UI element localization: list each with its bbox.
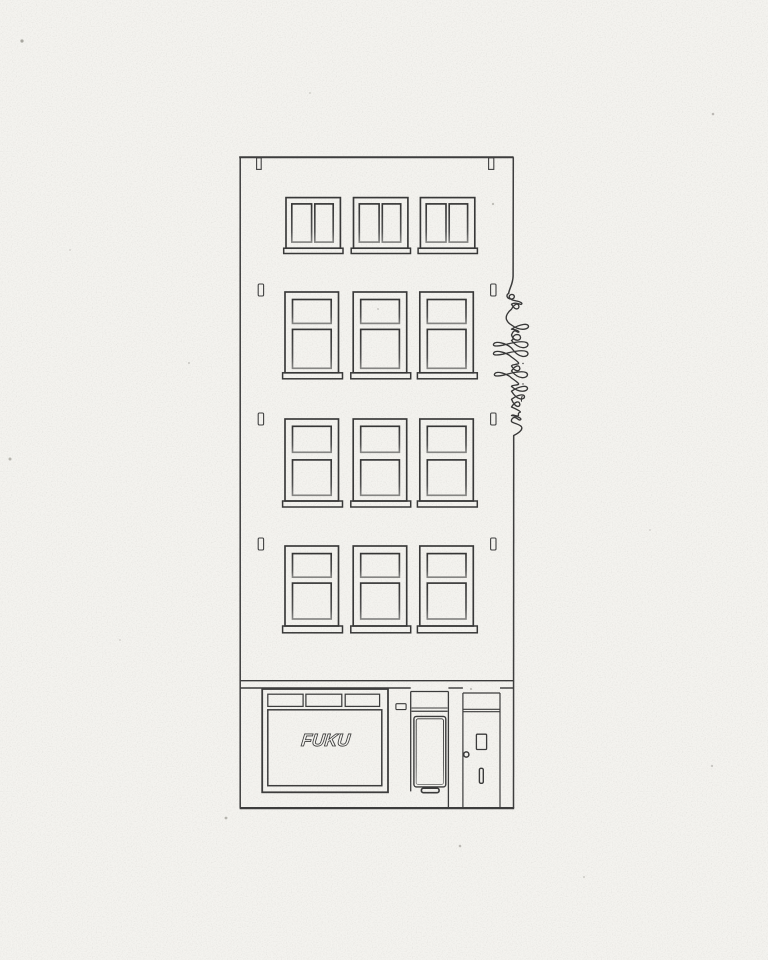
svg-text:FUKU: FUKU bbox=[300, 730, 352, 750]
